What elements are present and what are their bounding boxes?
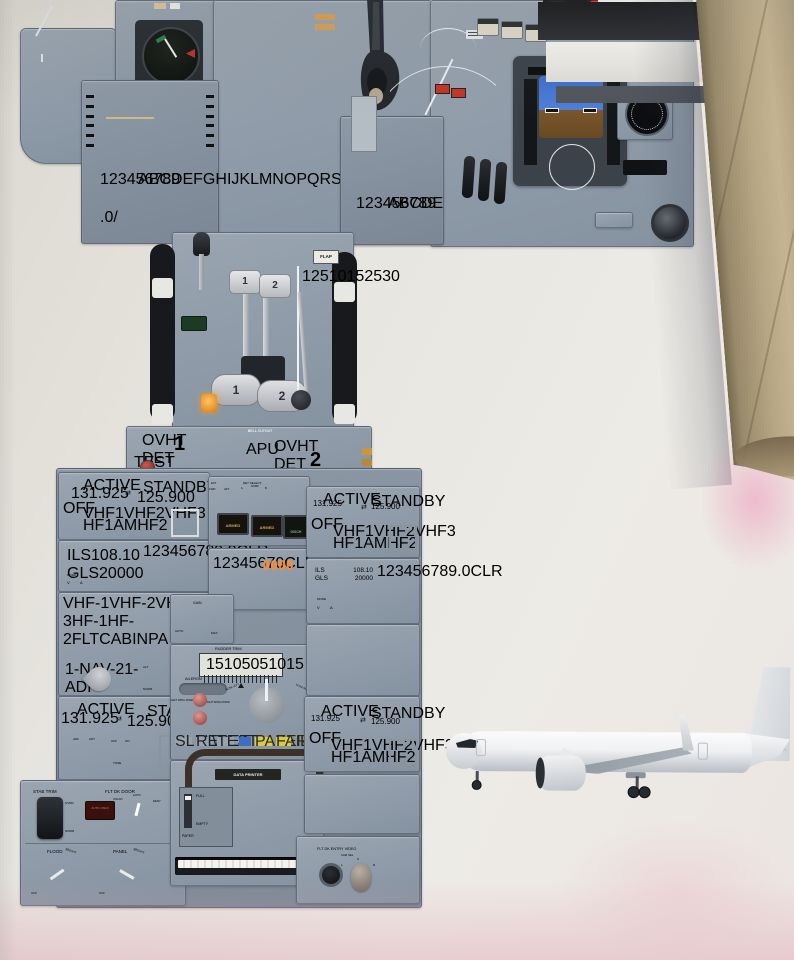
nav-keypad-key: 5 bbox=[179, 543, 188, 560]
transfer-arrow: ⇄ bbox=[361, 503, 371, 511]
n1-dial-1 bbox=[229, 6, 255, 32]
upper-eicas-display bbox=[215, 0, 361, 92]
paper-gauge: FULL EMPTY PAPER bbox=[179, 787, 233, 847]
flap-lever-knob bbox=[291, 390, 311, 410]
xpdr-key: 2 bbox=[222, 555, 231, 572]
active-frequency-display: 131.925 bbox=[313, 499, 359, 514]
nav-keypad-key: 1 bbox=[377, 563, 386, 580]
speedbrake-armed-light bbox=[181, 316, 207, 331]
comm-select-button: AM bbox=[361, 749, 385, 766]
throttle-quadrant: 1 2 1 2 FLAP 12510152530 bbox=[145, 228, 365, 433]
bell-cutout-placard: BELL CUTOUT bbox=[236, 426, 284, 436]
reverse-lever-1: 1 bbox=[211, 374, 261, 406]
transfer-arrow: ⇄ bbox=[125, 489, 135, 497]
cam-sel-knob bbox=[351, 863, 371, 891]
comm-off-button: OFF bbox=[311, 521, 323, 528]
aft-door-outline bbox=[698, 743, 708, 760]
comm-button-row-2: HF1AMHF2 bbox=[333, 535, 379, 541]
aft-lighting-panel: STAB TRIM OVRD NORM FLT DK DOOR AUTO UNL… bbox=[20, 780, 186, 906]
cdu-letter-key: A bbox=[138, 171, 149, 188]
nav-keypad-key: 9 bbox=[448, 563, 457, 580]
cdu-text-line bbox=[106, 107, 166, 109]
nd-text bbox=[448, 38, 458, 40]
norm-label: NORM bbox=[143, 687, 157, 691]
nose-gear-wheel bbox=[472, 780, 482, 790]
mini-gauge bbox=[148, 0, 190, 20]
metal-rotary-knob bbox=[545, 176, 573, 204]
cdu-lsk-left bbox=[86, 95, 94, 147]
ext-label: EXT bbox=[211, 481, 223, 485]
adf-label: ADF bbox=[73, 737, 87, 741]
right-wing-down-label: RIGHT WING DOWN bbox=[205, 701, 231, 704]
n1-dial-2 bbox=[263, 10, 289, 36]
frequency-transfer-knob bbox=[389, 525, 417, 553]
rudder-scale-number: 5 bbox=[242, 656, 251, 673]
aft-pedestal: ACTIVE STANDBY 131.925 ⇄ 125.900 OFF VHF… bbox=[18, 466, 420, 911]
off-label: OFF bbox=[99, 891, 113, 895]
lower-eicas-display bbox=[209, 98, 305, 238]
gauge-drum bbox=[154, 3, 166, 9]
speedbrake-lever-knob bbox=[193, 232, 210, 256]
mic-selector-label: VHF-2 bbox=[109, 595, 155, 612]
paper-gauge-slot bbox=[184, 794, 192, 828]
nav-display bbox=[390, 22, 496, 140]
pfd-speed-tape bbox=[523, 78, 538, 166]
tone-label: TONE bbox=[113, 761, 129, 765]
aileron-trim-wheel bbox=[193, 711, 207, 725]
cargo-fire-panel: EXT FWD AFT DET SELECT A NORM B ARMED AR… bbox=[208, 476, 310, 546]
nav-control-panel-2: ILS108.10 GLS20000 123456789.0CLR MODE V… bbox=[306, 558, 420, 624]
b-label: B bbox=[265, 487, 275, 490]
cdu-letter-key: A bbox=[388, 195, 399, 212]
comm-select-button: HF1 bbox=[331, 749, 361, 766]
boeing-737-illustration bbox=[429, 659, 794, 812]
wxr-gain-panel: GAIN AUTO MAX bbox=[170, 594, 234, 644]
gain-label: GAIN bbox=[193, 601, 213, 605]
sys-readout-1 bbox=[237, 102, 251, 109]
sys-dial-1 bbox=[219, 106, 241, 128]
nav-keypad-key: 7 bbox=[430, 563, 439, 580]
cdu-digit-pad: 123456789 bbox=[356, 195, 384, 213]
cdu-symbol-row: .0/ bbox=[100, 209, 132, 227]
door-rotary-knob bbox=[123, 801, 153, 831]
toggle-base bbox=[595, 212, 633, 228]
armed-light-aft: ARMED bbox=[251, 515, 283, 537]
frequency-select-knob bbox=[61, 515, 79, 533]
rudder-trim-indicator: 15105051015 bbox=[199, 653, 283, 677]
cam-s-label: S bbox=[357, 857, 365, 861]
comm-off-button: OFF bbox=[63, 505, 77, 513]
display-needle-line bbox=[35, 6, 52, 37]
comm-button-row-1: VHF1VHF2VHF3 bbox=[331, 737, 379, 743]
nav-keypad-key: 8 bbox=[439, 563, 448, 580]
comm-button-row-1: VHF1VHF2VHF3 bbox=[83, 505, 135, 512]
comm-select-button: HF1 bbox=[333, 535, 363, 552]
sys-box bbox=[257, 142, 273, 149]
nav-line1-mode: ILS bbox=[315, 567, 325, 575]
flap-detent-number: 5 bbox=[320, 268, 329, 285]
ovrd-label: OVRD bbox=[65, 801, 83, 805]
sys-box bbox=[257, 166, 273, 173]
rudder-trim-knob bbox=[237, 675, 297, 735]
comm-select-button: AM bbox=[113, 517, 137, 534]
xpdr-key: 3 bbox=[231, 555, 240, 572]
mic-selector-label: VHF-1 bbox=[63, 595, 109, 612]
comm-select-button: AM bbox=[363, 535, 387, 552]
norm-label: NORM bbox=[251, 485, 265, 488]
xpdr-ident-knob bbox=[279, 587, 291, 599]
panel-knob bbox=[109, 857, 145, 893]
norm-label: NORM bbox=[65, 829, 83, 833]
aft-label: AFT bbox=[224, 487, 238, 491]
trim-control-panel: RUDDER TRIM 15105051015 AILERON LEFT WIN… bbox=[170, 644, 310, 760]
nav-display: ILS108.10 GLS20000 bbox=[315, 567, 373, 591]
panel-divider bbox=[25, 843, 181, 844]
flap-detent-number: 1 bbox=[302, 268, 311, 285]
cdu-digit-key: 2 bbox=[365, 195, 374, 212]
knob-pointer bbox=[265, 679, 268, 701]
printer-msg-button bbox=[239, 737, 251, 746]
eicas-text-line bbox=[315, 70, 327, 72]
cam-r-label: R bbox=[373, 863, 381, 867]
mic-selector-label: PA bbox=[148, 631, 168, 648]
cdu-text-line bbox=[360, 155, 404, 157]
nav-keypad-key: 3 bbox=[161, 543, 170, 560]
printer-test-button: TEST bbox=[217, 737, 234, 746]
cdu-digit-pad: 123456789 bbox=[100, 171, 132, 189]
xpdr-key: 4 bbox=[240, 555, 249, 572]
max-label: MAX bbox=[211, 631, 227, 635]
rudder-scale-number: 10 bbox=[224, 656, 242, 673]
armed-light-fwd: ARMED bbox=[217, 513, 249, 535]
cdu-letter-key: R bbox=[319, 171, 331, 188]
gain-knob bbox=[193, 608, 211, 626]
flap-detent-number: 15 bbox=[347, 268, 365, 285]
mic-selector-label: HF-1 bbox=[72, 613, 108, 630]
vhf-comm-panel-3: ACTIVE STANDBY 131.925 ⇄ 125.900 OFF VHF… bbox=[304, 696, 420, 772]
nav-keypad-key: 4 bbox=[170, 543, 179, 560]
n1-readout-2 bbox=[283, 4, 299, 12]
forward-door-outline bbox=[476, 739, 486, 756]
xpdr-code-display: 0000 bbox=[257, 557, 299, 577]
cdu-text-line bbox=[106, 99, 146, 101]
cdu-letter-pad: ABCDEFGHIJKLMNOPQRSTUVWXYZ bbox=[388, 195, 438, 213]
nav-a-button: A bbox=[330, 603, 339, 612]
cdu-digit-key: 3 bbox=[118, 171, 127, 188]
cdu-letter-key: E bbox=[432, 195, 443, 212]
knob-pointer bbox=[50, 869, 65, 880]
auto-label: AUTO bbox=[175, 629, 193, 633]
adi-red-flag bbox=[186, 49, 195, 58]
transfer-arrow: ⇄ bbox=[360, 716, 370, 724]
standby-adi-face bbox=[142, 27, 200, 85]
thrust-lever-handle-2: 2 bbox=[259, 274, 291, 298]
printer-paper-edge bbox=[178, 860, 314, 868]
mic-selector-label: FLT bbox=[72, 631, 99, 648]
flap-label: FLAP bbox=[313, 250, 339, 264]
sys-box bbox=[223, 162, 239, 169]
nav-line2-mode: GLS bbox=[315, 575, 328, 583]
rudder-scale-number: 15 bbox=[206, 656, 224, 673]
aileron-label: AILERON bbox=[185, 677, 221, 681]
frequency-select-knob bbox=[309, 745, 326, 762]
fire-placard bbox=[206, 443, 240, 451]
main-gear-wheel bbox=[639, 786, 651, 798]
tai-indicator bbox=[315, 24, 335, 30]
printer-reset-button: RESET bbox=[196, 737, 213, 746]
paper-gauge-indicator bbox=[185, 796, 191, 800]
sys-box bbox=[223, 138, 239, 145]
nav-control-panel-1: ILS108.10 GLS20000 123456789.0CLR MODE V… bbox=[58, 540, 210, 592]
a-label: A bbox=[241, 487, 251, 490]
checklist-placard bbox=[351, 96, 377, 152]
cdu-digit-key: 3 bbox=[374, 195, 383, 212]
comm-off-button: OFF bbox=[309, 735, 321, 742]
tai-indicator bbox=[315, 14, 335, 20]
nav-keypad-key: CLR bbox=[471, 563, 503, 580]
nav-a-button: A bbox=[80, 578, 89, 587]
cdu-digit-key: 4 bbox=[127, 171, 136, 188]
blank-panel bbox=[306, 624, 420, 696]
rudder-scale-number: 10 bbox=[268, 656, 286, 673]
auto-unlk-light: AUTO UNLK bbox=[85, 801, 115, 820]
frequency-transfer-knob bbox=[389, 739, 418, 768]
cdu-text-line bbox=[106, 131, 176, 133]
sys-readout-2 bbox=[271, 106, 285, 113]
engine-intake bbox=[536, 757, 545, 788]
knob-pointer bbox=[119, 869, 134, 879]
small-push-button bbox=[556, 210, 567, 221]
active-frequency-display: 131.925 bbox=[311, 711, 358, 727]
nav-line1-value: 108.10 bbox=[353, 567, 373, 575]
red-sliver-light bbox=[435, 84, 450, 94]
adi-needle bbox=[163, 36, 177, 57]
nav-keypad: 123456789.0CLR bbox=[143, 543, 181, 561]
paper-label: PAPER bbox=[182, 834, 206, 838]
auto-label: AUTO bbox=[133, 793, 151, 797]
comm-select-button: VHF3 bbox=[415, 523, 456, 540]
stab-trim-wheel-left bbox=[150, 244, 175, 422]
sys-box bbox=[223, 150, 239, 157]
fault-light bbox=[362, 448, 372, 455]
small-button bbox=[319, 657, 329, 667]
outboard-display-corner bbox=[15, 0, 120, 50]
standby-frequency-display: 125.900 bbox=[371, 714, 418, 730]
left-edge-shade bbox=[0, 0, 16, 960]
cargo-placard bbox=[285, 489, 305, 497]
knob-pointer bbox=[41, 54, 43, 62]
aileron-trim-wheel bbox=[193, 693, 207, 707]
cdu-letter-key: C bbox=[159, 171, 171, 188]
standby-frequency-display: 125.900 bbox=[137, 489, 187, 504]
cdu-letter-key: Q bbox=[307, 171, 319, 188]
parking-brake-light bbox=[201, 394, 217, 412]
nav-v-button: V bbox=[317, 603, 326, 612]
comm-select-button: HF2 bbox=[137, 517, 167, 534]
flt-dk-entry-video-panel: FLT DK ENTRY VIDEO CAM SEL L S R bbox=[296, 836, 420, 904]
nav-keypad: 123456789.0CLR bbox=[377, 563, 413, 581]
ant-label: ANT bbox=[89, 737, 103, 741]
printer-paper-button: PAPER bbox=[255, 737, 272, 746]
mode-label: MODE bbox=[67, 573, 87, 577]
fire-placard bbox=[276, 458, 306, 466]
egt-dial-1 bbox=[227, 50, 245, 68]
stab-trim-override-switch bbox=[37, 797, 63, 839]
full-label: FULL bbox=[196, 794, 216, 798]
cdu-letter-key: C bbox=[409, 195, 421, 212]
adf-active-display: 131.925 bbox=[61, 710, 113, 727]
cdu-letter-key: D bbox=[421, 195, 433, 212]
wing-bracket bbox=[583, 108, 597, 113]
flt-dk-entry-video-label: FLT DK ENTRY VIDEO bbox=[317, 847, 401, 851]
deny-label: DENY bbox=[153, 799, 171, 803]
sys-box bbox=[255, 200, 271, 208]
small-push-button bbox=[539, 206, 550, 217]
cdu-digit-key: 1 bbox=[356, 195, 365, 212]
nav-v-button: V bbox=[67, 578, 76, 587]
flap-detent-number: 30 bbox=[382, 268, 400, 285]
blank-panel bbox=[304, 774, 420, 834]
nav-keypad-key: 2 bbox=[152, 543, 161, 560]
rt-ic-knob bbox=[61, 671, 76, 686]
transfer-arrow: ⇄ bbox=[116, 715, 126, 723]
speedbrake-placard bbox=[175, 276, 201, 300]
xpdr-key: 1 bbox=[213, 555, 222, 572]
comm-button-row-2: HF1AMHF2 bbox=[331, 749, 379, 755]
nav-keypad-key: 5 bbox=[413, 563, 422, 580]
trim-wheel-stripe bbox=[152, 278, 173, 298]
prst-button bbox=[501, 21, 523, 39]
quadrant-placard bbox=[187, 338, 213, 354]
cdu-letter-key: B bbox=[149, 171, 160, 188]
nav-line2-value: 20000 bbox=[355, 575, 373, 583]
cdu-letter-key: F bbox=[443, 195, 444, 212]
flap-detent-number: 2 bbox=[311, 268, 320, 285]
cdu-letter-key: F bbox=[193, 171, 203, 188]
sys-box bbox=[257, 154, 273, 161]
pitch-mark bbox=[567, 104, 575, 105]
gauge-drum bbox=[170, 3, 180, 9]
nav-keypad-key: 0 bbox=[462, 563, 471, 580]
nav-keypad-key: 7 bbox=[196, 543, 205, 560]
cdu-letter-key: D bbox=[171, 171, 183, 188]
red-sliver-light bbox=[451, 88, 466, 98]
nav-line1-value: 108.10 bbox=[91, 547, 140, 565]
stab-trim-label: STAB TRIM bbox=[33, 789, 73, 794]
on-label: ON bbox=[125, 739, 137, 743]
cargo-aft-light bbox=[226, 493, 238, 505]
cdu-letter-key: E bbox=[182, 171, 193, 188]
xpdr-mode-knob bbox=[261, 585, 273, 597]
apu-letter: U bbox=[267, 441, 279, 458]
printer-slew-button: SLEW bbox=[175, 737, 192, 746]
printer-fail-button: FAIL bbox=[276, 737, 291, 746]
fwd-label: FWD bbox=[209, 487, 223, 491]
cdu-text-line bbox=[106, 117, 154, 119]
nav-keypad-key: 3 bbox=[395, 563, 404, 580]
rudder-trim-label: RUDDER TRIM bbox=[215, 647, 265, 651]
standby-frequency-display: 125.900 bbox=[371, 502, 417, 517]
cdu-letter-key: B bbox=[399, 195, 410, 212]
thrust-lever-handle-1: 1 bbox=[229, 270, 261, 294]
sys-box bbox=[221, 196, 237, 204]
knob-pointer bbox=[134, 803, 140, 816]
nav-line2-value: 20000 bbox=[99, 565, 144, 583]
off-label: OFF bbox=[111, 739, 123, 743]
nav-keypad-key: 4 bbox=[404, 563, 413, 580]
wing-bracket bbox=[545, 108, 559, 113]
cam-l-label: L bbox=[341, 863, 349, 867]
flood-knob bbox=[43, 857, 79, 893]
cdu-screen bbox=[98, 91, 196, 149]
cdu-symbol-key: / bbox=[113, 209, 117, 226]
fire-placard bbox=[207, 454, 241, 462]
vhf-comm-panel-2: ACTIVE STANDBY 131.925 ⇄ 125.900 OFF VHF… bbox=[306, 486, 420, 558]
frequency-select-knob bbox=[311, 531, 327, 547]
flap-scale-line bbox=[297, 266, 299, 396]
data-printer-label: DATA PRINTER bbox=[215, 769, 281, 780]
flap-detent-number: 10 bbox=[329, 268, 347, 285]
prst-button bbox=[477, 18, 499, 36]
xpdr-keypad: 12345670CLR bbox=[213, 555, 251, 573]
nav-keypad-key: 1 bbox=[143, 543, 152, 560]
video-jack bbox=[319, 863, 343, 887]
sys-dial-2 bbox=[253, 110, 275, 132]
comm-button-row-1: VHF1VHF2VHF3 bbox=[333, 523, 379, 529]
engine-nacelle bbox=[538, 755, 586, 790]
empty-label: EMPTY bbox=[196, 822, 220, 826]
bottom-right-warm-tint bbox=[560, 820, 794, 960]
eicas-text-line bbox=[315, 76, 323, 78]
egt-dial-2 bbox=[259, 54, 277, 72]
cdu-digit-key: 1 bbox=[100, 171, 109, 188]
cargo-fwd-light bbox=[211, 493, 223, 505]
fire-placard bbox=[205, 432, 239, 440]
active-frequency-display: 131.925 bbox=[71, 485, 121, 500]
rudder-scale-number: 15 bbox=[286, 656, 304, 673]
side-panel-knob bbox=[31, 52, 53, 74]
comm-select-button: HF1 bbox=[83, 517, 113, 534]
frequency-transfer-knob bbox=[171, 509, 199, 537]
nav-display: ILS108.10 GLS20000 bbox=[67, 547, 131, 571]
vhf-comm-panel-1: ACTIVE STANDBY 131.925 ⇄ 125.900 OFF VHF… bbox=[58, 472, 210, 540]
comm-button-row-2: HF1AMHF2 bbox=[83, 517, 135, 524]
alt-label: ALT bbox=[143, 665, 157, 669]
off-label: OFF bbox=[31, 891, 45, 895]
cdu-left: 123456789 .0/ ABCDEFGHIJKLMNOPQRSTUVWXYZ bbox=[81, 80, 219, 244]
fault-light bbox=[362, 459, 372, 466]
nav-line1-mode: ILS bbox=[67, 547, 91, 565]
n1-readout-1 bbox=[249, 0, 265, 8]
mode-label: MODE bbox=[317, 597, 337, 601]
photo-of-cockpit-poster: { "colors":{"panel_gray":"#94a0ac","scre… bbox=[0, 0, 794, 960]
cdu-digit-key: 2 bbox=[109, 171, 118, 188]
flap-detent-number: 25 bbox=[364, 268, 382, 285]
nav-keypad-key: 2 bbox=[386, 563, 395, 580]
apu-letter: P bbox=[257, 441, 268, 458]
cdu-letter-pad: ABCDEFGHIJKLMNOPQRSTUVWXYZ bbox=[138, 171, 200, 189]
mic-selector-label: CABIN bbox=[99, 631, 148, 648]
trim-wheel-stripe bbox=[334, 282, 355, 302]
apu-letter: A bbox=[246, 441, 257, 458]
rudder-scale-number: 5 bbox=[259, 656, 268, 673]
